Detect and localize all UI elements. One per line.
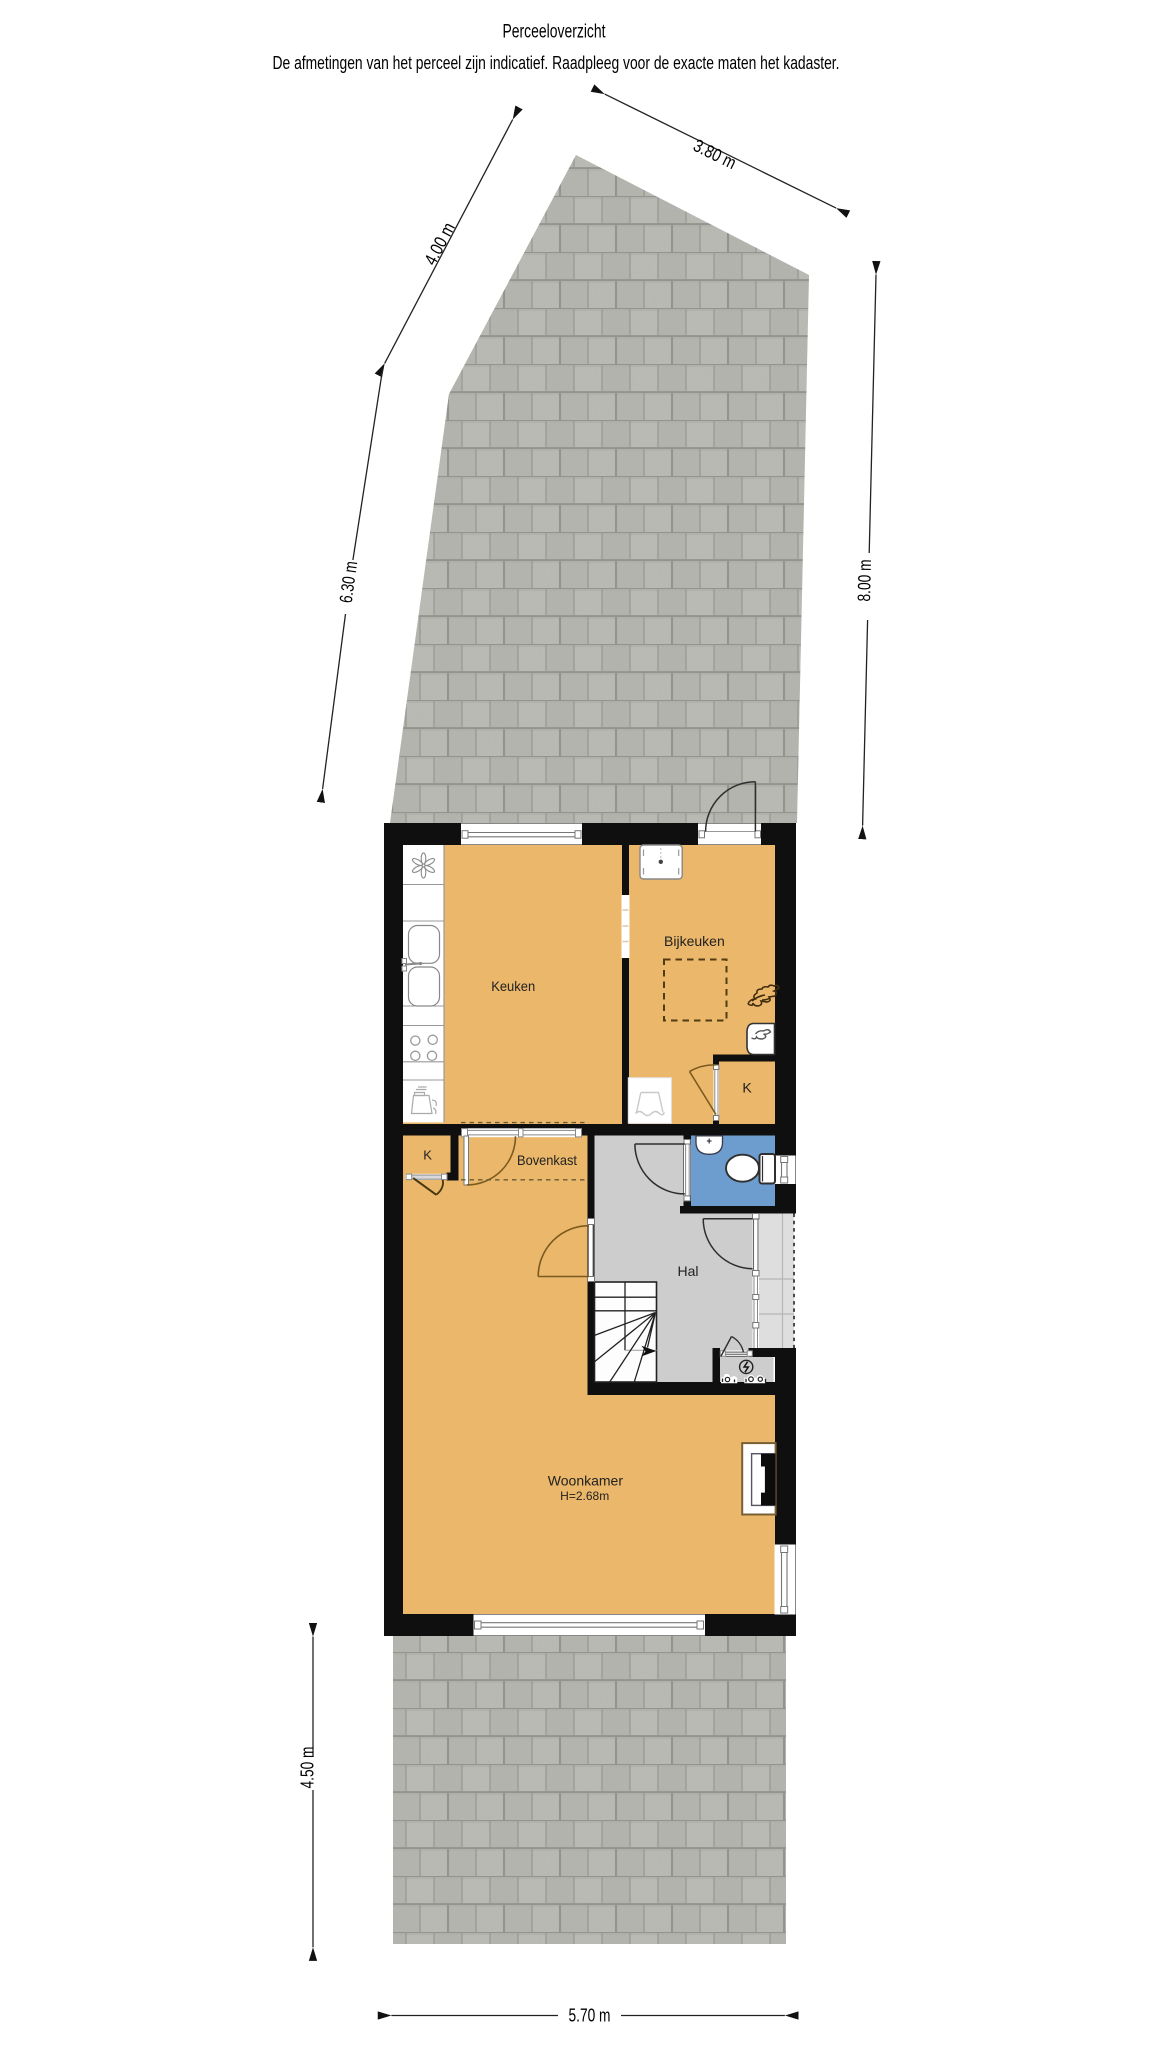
svg-text:Hal: Hal <box>677 1263 698 1279</box>
svg-text:De afmetingen van het perceel: De afmetingen van het perceel zijn indic… <box>273 53 840 73</box>
svg-text:Bijkeuken: Bijkeuken <box>664 933 725 949</box>
svg-text:Perceeloverzicht: Perceeloverzicht <box>503 22 607 43</box>
svg-text:H=2.68m: H=2.68m <box>560 1489 609 1503</box>
svg-text:5.70 m: 5.70 m <box>569 2006 611 2026</box>
svg-text:K: K <box>423 1148 432 1163</box>
svg-text:Woonkamer: Woonkamer <box>548 1472 624 1488</box>
svg-text:Keuken: Keuken <box>491 978 535 994</box>
svg-text:8.00 m: 8.00 m <box>854 559 875 601</box>
svg-text:Bovenkast: Bovenkast <box>517 1152 577 1168</box>
svg-text:4.50 m: 4.50 m <box>298 1747 318 1789</box>
svg-text:K: K <box>742 1080 752 1096</box>
